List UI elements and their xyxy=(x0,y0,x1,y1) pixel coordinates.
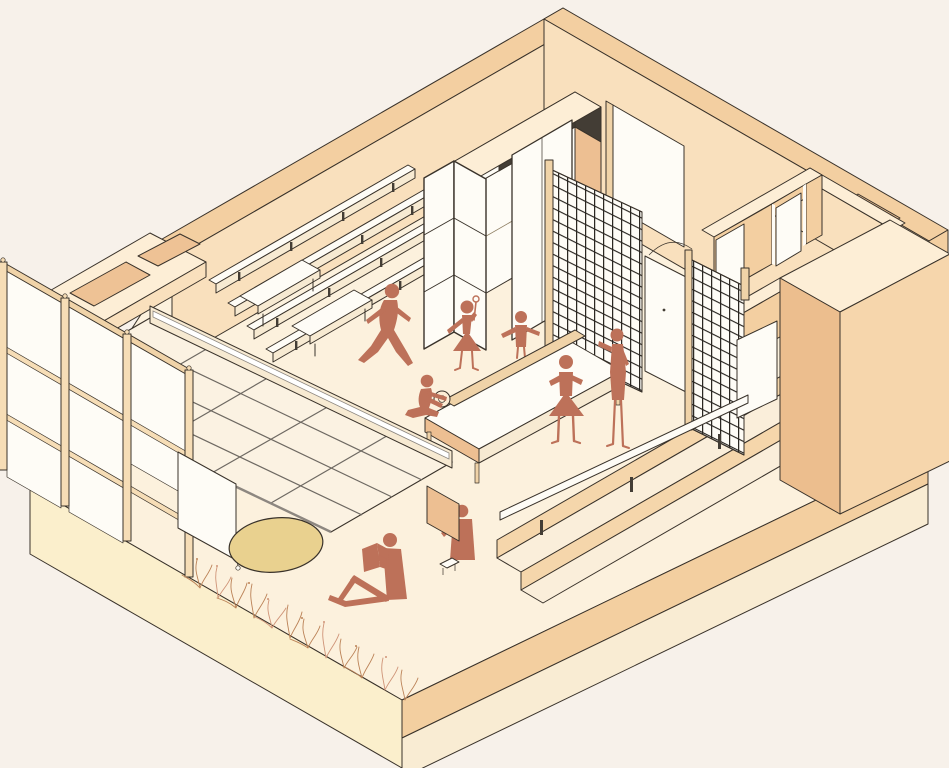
folding-screen xyxy=(424,161,486,350)
facade-panel xyxy=(7,266,61,508)
grid-post xyxy=(545,160,553,352)
door-jamb xyxy=(606,101,613,206)
grid-post-peg xyxy=(741,268,749,300)
axonometric-interior-illustration xyxy=(0,0,949,768)
grid-post xyxy=(685,250,692,430)
facade-panel xyxy=(69,302,123,543)
screen-pull xyxy=(236,566,240,570)
partition-block xyxy=(780,220,949,514)
illustration-stage xyxy=(0,0,949,768)
block-left-face xyxy=(780,278,840,514)
